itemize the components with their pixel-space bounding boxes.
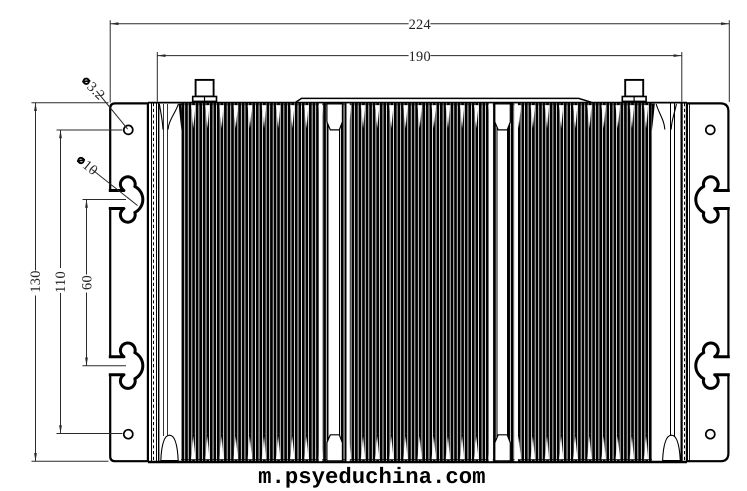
svg-text:130: 130	[28, 270, 44, 292]
svg-text:m.psyeduchina.com: m.psyeduchina.com	[258, 464, 485, 490]
svg-text:224: 224	[409, 17, 431, 33]
svg-text:110: 110	[53, 271, 69, 293]
svg-text:60: 60	[79, 275, 95, 290]
svg-text:190: 190	[409, 49, 431, 65]
